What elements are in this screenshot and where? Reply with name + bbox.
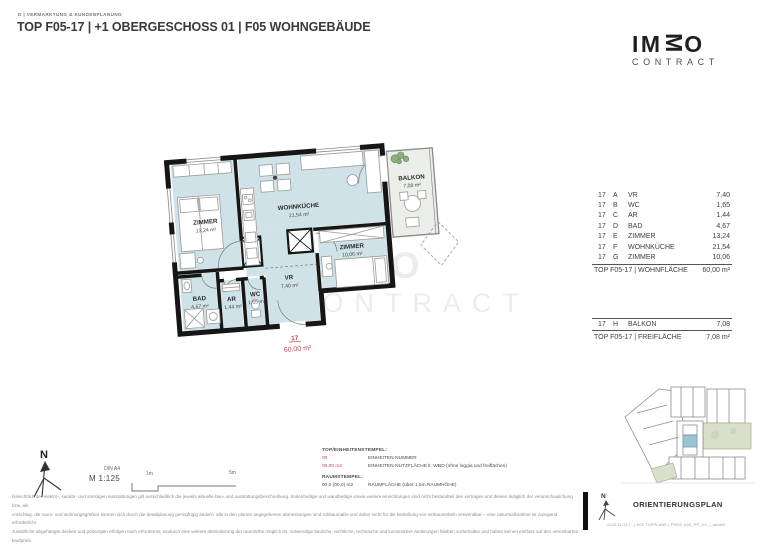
cell-value: 10,06 — [694, 254, 730, 261]
table-row: 17AVR7,40 — [592, 190, 732, 200]
cell-top: 17 — [598, 212, 613, 219]
table-row: 17HBALKON7,08 — [592, 318, 732, 329]
north-letter: N — [40, 449, 48, 461]
total-value: 60,00 m² — [702, 267, 730, 274]
room-label-ar: AR — [227, 296, 237, 304]
table-row: 17DBAD4,67 — [592, 221, 732, 231]
balcony — [386, 146, 460, 269]
cell-value: 4,67 — [694, 223, 730, 230]
logo-letter: M — [641, 33, 663, 55]
orientation-footnote: 2025.11.13 | - | D01 TOPPLÄNE | FW03_A00… — [607, 523, 725, 527]
total-label: TOP F05-17 | WOHNFLÄCHE — [594, 267, 702, 274]
highlighted-unit — [683, 435, 697, 447]
cell-value: 7,08 — [694, 321, 730, 328]
cell-top: 17 — [598, 254, 613, 261]
cell-key: B — [613, 202, 628, 209]
area-table-wohnflaeche: 17AVR7,40 17BWC1,65 17CAR1,44 17DBAD4,67… — [592, 190, 732, 274]
area-table-freiflaeche: 17HBALKON7,08 TOP F05-17 | FREIFLÄCHE 7,… — [592, 318, 732, 341]
total-row-wohnflaeche: TOP F05-17 | WOHNFLÄCHE 60,00 m² — [592, 264, 732, 275]
logo-subtitle: CONTRACT — [632, 57, 719, 67]
cell-key: A — [613, 192, 628, 199]
scale-bar — [130, 480, 240, 494]
cell-name: BALKON — [628, 321, 694, 328]
orientation-plan — [615, 383, 760, 488]
cell-name: VR — [628, 192, 694, 199]
cell-name: WC — [628, 202, 694, 209]
logo-letter: I — [632, 33, 641, 55]
legend-sample-area: 00,00 m2 — [322, 463, 368, 471]
legend-stamp-title: TOP/EINHEITENSTEMPEL: — [322, 448, 507, 453]
total-label: TOP F05-17 | FREIFLÄCHE — [594, 334, 706, 341]
legend-sample-room: 00,0 (00,0) m2 — [322, 482, 368, 490]
disclaimer-line: vorschlag. die raum- und wohnungsgrößen … — [12, 511, 582, 529]
cell-value: 1,44 — [694, 212, 730, 219]
orientation-north-letter: N — [601, 493, 606, 500]
cell-key: G — [613, 254, 628, 261]
cell-top: 17 — [598, 223, 613, 230]
orientation-title: ORIENTIERUNGSPLAN — [633, 500, 723, 509]
disclaimer-line: zusätzliche abgehängte decken und pölzun… — [12, 528, 582, 545]
fold-mark — [583, 492, 588, 530]
cell-top: 17 — [598, 321, 613, 328]
total-row-freiflaeche: TOP F05-17 | FREIFLÄCHE 7,08 m² — [592, 330, 732, 341]
cell-top: 17 — [598, 244, 613, 251]
table-row: 17GZIMMER10,06 — [592, 252, 732, 262]
cell-name: ZIMMER — [628, 254, 694, 261]
floor-plan: ZIMMER 13,24 m² WOHNKÜCHE 21,54 m² ZIMME… — [156, 132, 468, 378]
cell-name: ZIMMER — [628, 233, 694, 240]
orientation-north-arrow-icon: N — [598, 490, 622, 524]
cell-key: D — [613, 223, 628, 230]
cell-name: AR — [628, 212, 694, 219]
disclaimer: hinsichtlich der elektro-, sanitär- und … — [12, 493, 582, 545]
logo-letter: O — [684, 33, 704, 55]
header-department: D | VERMARKTUNG & KUNDENPLANUNG — [18, 12, 122, 17]
cell-top: 17 — [598, 192, 613, 199]
cell-key: E — [613, 233, 628, 240]
room-label-bad: BAD — [192, 295, 206, 303]
table-row: 17EZIMMER13,24 — [592, 232, 732, 242]
legend-desc-room: RAUMFLÄCHE (über 1,5m RAUMHÖHE) — [368, 482, 507, 490]
legend-desc-unit: EINHEITEN-NUMMER — [368, 455, 507, 463]
logo-letter-rotated: M — [662, 33, 684, 55]
legend-sample-unit: 00 — [322, 455, 368, 463]
cell-value: 1,65 — [694, 202, 730, 209]
unit-stamp-area: 60,00 m² — [284, 345, 313, 354]
scale-ratio-label: M 1:125 — [80, 474, 120, 483]
cell-value: 13,24 — [694, 233, 730, 240]
cell-key: C — [613, 212, 628, 219]
cell-top: 17 — [598, 202, 613, 209]
legend-room-title: RAUMSTEMPEL: — [322, 475, 507, 480]
cell-key: F — [613, 244, 628, 251]
scale-bar-end-label: 5m — [229, 470, 236, 476]
page-title: TOP F05-17 | +1 OBERGESCHOSS 01 | F05 WO… — [17, 20, 370, 34]
total-value: 7,08 m² — [706, 334, 730, 341]
cell-value: 21,54 — [694, 244, 730, 251]
cell-value: 7,40 — [694, 192, 730, 199]
plan-sheet: D | VERMARKTUNG & KUNDENPLANUNG TOP F05-… — [0, 0, 770, 545]
room-label-wc: WC — [250, 291, 261, 299]
room-label-vr: VR — [284, 274, 294, 282]
table-row: 17BWC1,65 — [592, 200, 732, 210]
table-row: 17CAR1,44 — [592, 211, 732, 221]
cell-top: 17 — [598, 233, 613, 240]
disclaimer-line: hinsichtlich der elektro-, sanitär- und … — [12, 493, 582, 511]
din-label: DIN A4 — [86, 466, 120, 472]
scale-bar-start-label: 1m — [146, 471, 153, 477]
stamp-legend: TOP/EINHEITENSTEMPEL: 00 EINHEITEN-NUMME… — [322, 448, 507, 490]
cell-name: WOHNKÜCHE — [628, 244, 694, 251]
brand-wordmark: I M M O — [632, 33, 705, 55]
brand-logo: I M M O CONTRACT — [632, 33, 719, 67]
legend-desc-area: EINHEITEN-NUTZFLÄCHE lt. WBO (ohne loggi… — [368, 463, 507, 471]
unit-stamp: 17 60,00 m² — [283, 334, 313, 354]
cell-key: H — [613, 321, 628, 328]
cell-name: BAD — [628, 223, 694, 230]
table-row: 17FWOHNKÜCHE21,54 — [592, 242, 732, 252]
